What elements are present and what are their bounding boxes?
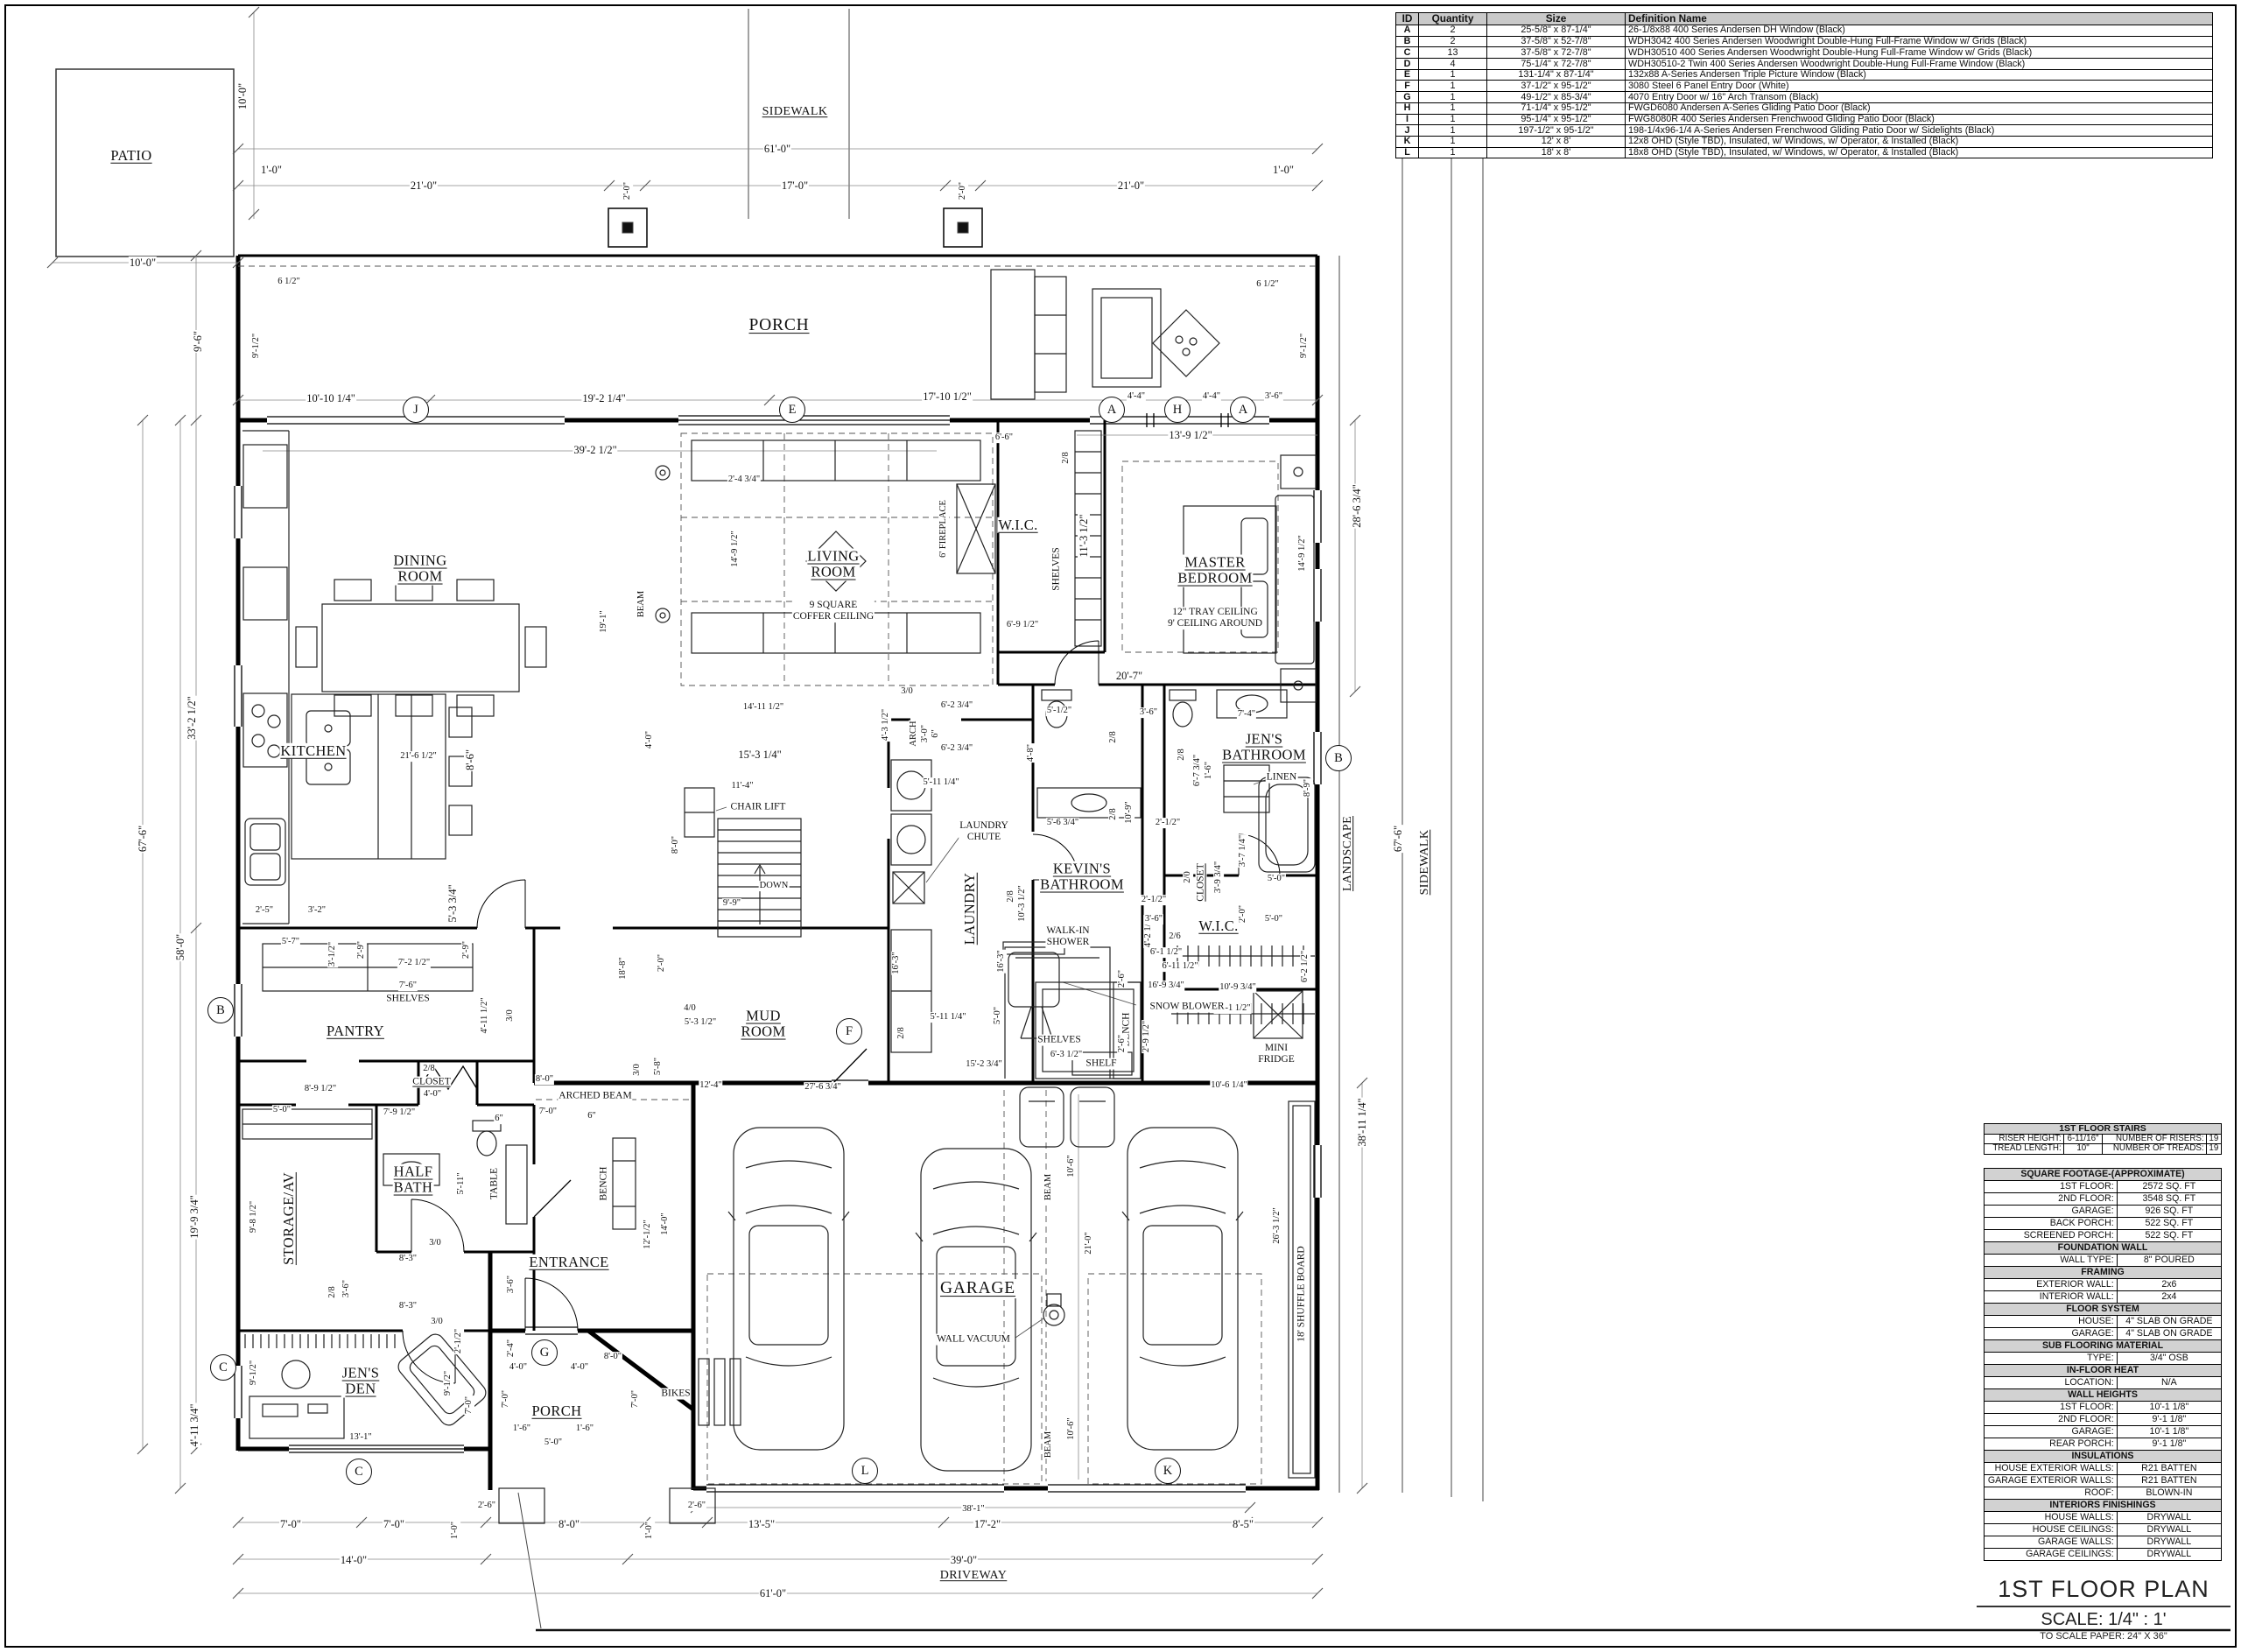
spec-row: TYPE:3/4" OSB	[1985, 1352, 2222, 1364]
leader-lines	[716, 779, 1268, 1338]
spec-row: GARAGE:10'-1 1/8"	[1985, 1425, 2222, 1438]
spec-row: INTERIORS FINISHINGS	[1985, 1499, 2222, 1511]
spec-row: 1ST FLOOR:2572 SQ. FT	[1985, 1180, 2222, 1192]
spec-row: WALL HEIGHTS	[1985, 1388, 2222, 1401]
schedule-header-row: ID Quantity Size Definition Name	[1396, 13, 2213, 25]
sheet-border	[5, 5, 2236, 1647]
spec-row: GARAGE CEILINGS:DRYWALL	[1985, 1548, 2222, 1560]
spec-row: HOUSE:4" SLAB ON GRADE	[1985, 1315, 2222, 1327]
table-row: I195-1/4" x 95-1/2"FWG8080R 400 Series A…	[1396, 114, 2213, 125]
spec-row: REAR PORCH:9'-1 1/8"	[1985, 1438, 2222, 1450]
spec-row: LOCATION:N/A	[1985, 1376, 2222, 1388]
stairs-table: 1ST FLOOR STAIRS RISER HEIGHT:6-11/16"NU…	[1984, 1123, 2222, 1155]
spec-row: GARAGE WALLS:DRYWALL	[1985, 1536, 2222, 1548]
table-row: D475-1/4" x 72-7/8"WDH30510-2 Twin 400 S…	[1396, 59, 2213, 70]
spec-row: HOUSE CEILINGS:DRYWALL	[1985, 1523, 2222, 1536]
spec-table: SQUARE FOOTAGE-(APPROXIMATE)1ST FLOOR:25…	[1984, 1168, 2222, 1561]
table-row: H171-1/4" x 95-1/2"FWGD6080 Andersen A-S…	[1396, 102, 2213, 114]
title-block: 1ST FLOOR PLAN SCALE: 1/4" : 1' TO SCALE…	[1977, 1576, 2230, 1641]
spec-row: GARAGE:926 SQ. FT	[1985, 1205, 2222, 1217]
table-row: K112' x 8'12x8 OHD (Style TBD), Insulate…	[1396, 136, 2213, 147]
sheet-paper-note: TO SCALE PAPER: 24" X 36"	[1977, 1631, 2230, 1641]
spec-row: FRAMING	[1985, 1266, 2222, 1278]
spec-row: WALL TYPE:8" POURED	[1985, 1254, 2222, 1266]
table-row: J1197-1/2" x 95-1/2"198-1/4x96-1/4 A-Ser…	[1396, 125, 2213, 137]
furniture	[242, 270, 1316, 1523]
spec-row: IN-FLOOR HEAT	[1985, 1364, 2222, 1376]
spec-row: HOUSE WALLS:DRYWALL	[1985, 1511, 2222, 1523]
table-row: E1131-1/4" x 87-1/4"132x88 A-Series Ande…	[1396, 69, 2213, 81]
spec-row: 1ST FLOOR:10'-1 1/8"	[1985, 1401, 2222, 1413]
schedule-header-id: ID	[1396, 13, 1419, 25]
spec-row: SCREENED PORCH:522 SQ. FT	[1985, 1229, 2222, 1241]
spec-row: INSULATIONS	[1985, 1450, 2222, 1462]
schedule-header-quantity: Quantity	[1419, 13, 1487, 25]
schedule-header-definition: Definition Name	[1626, 13, 2213, 25]
spec-row: GARAGE EXTERIOR WALLS:R21 BATTEN	[1985, 1474, 2222, 1487]
table-row: A225-5/8" x 87-1/4"26-1/8x88 400 Series …	[1396, 25, 2213, 37]
spec-row: GARAGE:4" SLAB ON GRADE	[1985, 1327, 2222, 1339]
floor-plan-sheet: PATIOSIDEWALK10'-0"10'-0"61'-0"1'-0"21'-…	[0, 0, 2241, 1652]
table-row: L118' x 8'18x8 OHD (Style TBD), Insulate…	[1396, 147, 2213, 158]
spec-row: EXTERIOR WALL:2x6	[1985, 1278, 2222, 1290]
schedule-header-size: Size	[1487, 13, 1626, 25]
spec-row: FLOOR SYSTEM	[1985, 1303, 2222, 1315]
info-sidebar: 1ST FLOOR STAIRS RISER HEIGHT:6-11/16"NU…	[1984, 1123, 2222, 1561]
table-row: C1337-5/8" x 72-7/8"WDH30510 400 Series …	[1396, 47, 2213, 59]
spec-row: SUB FLOORING MATERIAL	[1985, 1339, 2222, 1352]
spec-row: SQUARE FOOTAGE-(APPROXIMATE)	[1985, 1168, 2222, 1180]
spec-row: BACK PORCH:522 SQ. FT	[1985, 1217, 2222, 1229]
sheet-title: 1ST FLOOR PLAN	[1977, 1576, 2230, 1607]
sheet-scale: SCALE: 1/4" : 1'	[1977, 1610, 2230, 1630]
spec-row: FOUNDATION WALL	[1985, 1241, 2222, 1254]
floor-plan-drawing	[0, 0, 2241, 1652]
window-door-schedule: ID Quantity Size Definition Name A225-5/…	[1395, 12, 2213, 158]
dimension-lines	[53, 12, 1362, 1593]
stairs-table-title: 1ST FLOOR STAIRS	[1985, 1124, 2222, 1135]
table-row: G149-1/2" x 85-3/4"4070 Entry Door w/ 16…	[1396, 92, 2213, 103]
table-row: RISER HEIGHT:6-11/16"NUMBER OF RISERS:19	[1985, 1134, 2222, 1144]
spec-row: INTERIOR WALL:2x4	[1985, 1290, 2222, 1303]
table-row: TREAD LENGTH:10"NUMBER OF TREADS:19	[1985, 1144, 2222, 1155]
garage-cars	[728, 1128, 1243, 1471]
table-row: B237-5/8" x 52-7/8"WDH3042 400 Series An…	[1396, 36, 2213, 47]
spec-row: 2ND FLOOR:9'-1 1/8"	[1985, 1413, 2222, 1425]
table-row: F137-1/2" x 95-1/2"3080 Steel 6 Panel En…	[1396, 81, 2213, 92]
spec-row: ROOF:BLOWN-IN	[1985, 1487, 2222, 1499]
spec-row: HOUSE EXTERIOR WALLS:R21 BATTEN	[1985, 1462, 2222, 1474]
spec-row: 2ND FLOOR:3548 SQ. FT	[1985, 1192, 2222, 1205]
